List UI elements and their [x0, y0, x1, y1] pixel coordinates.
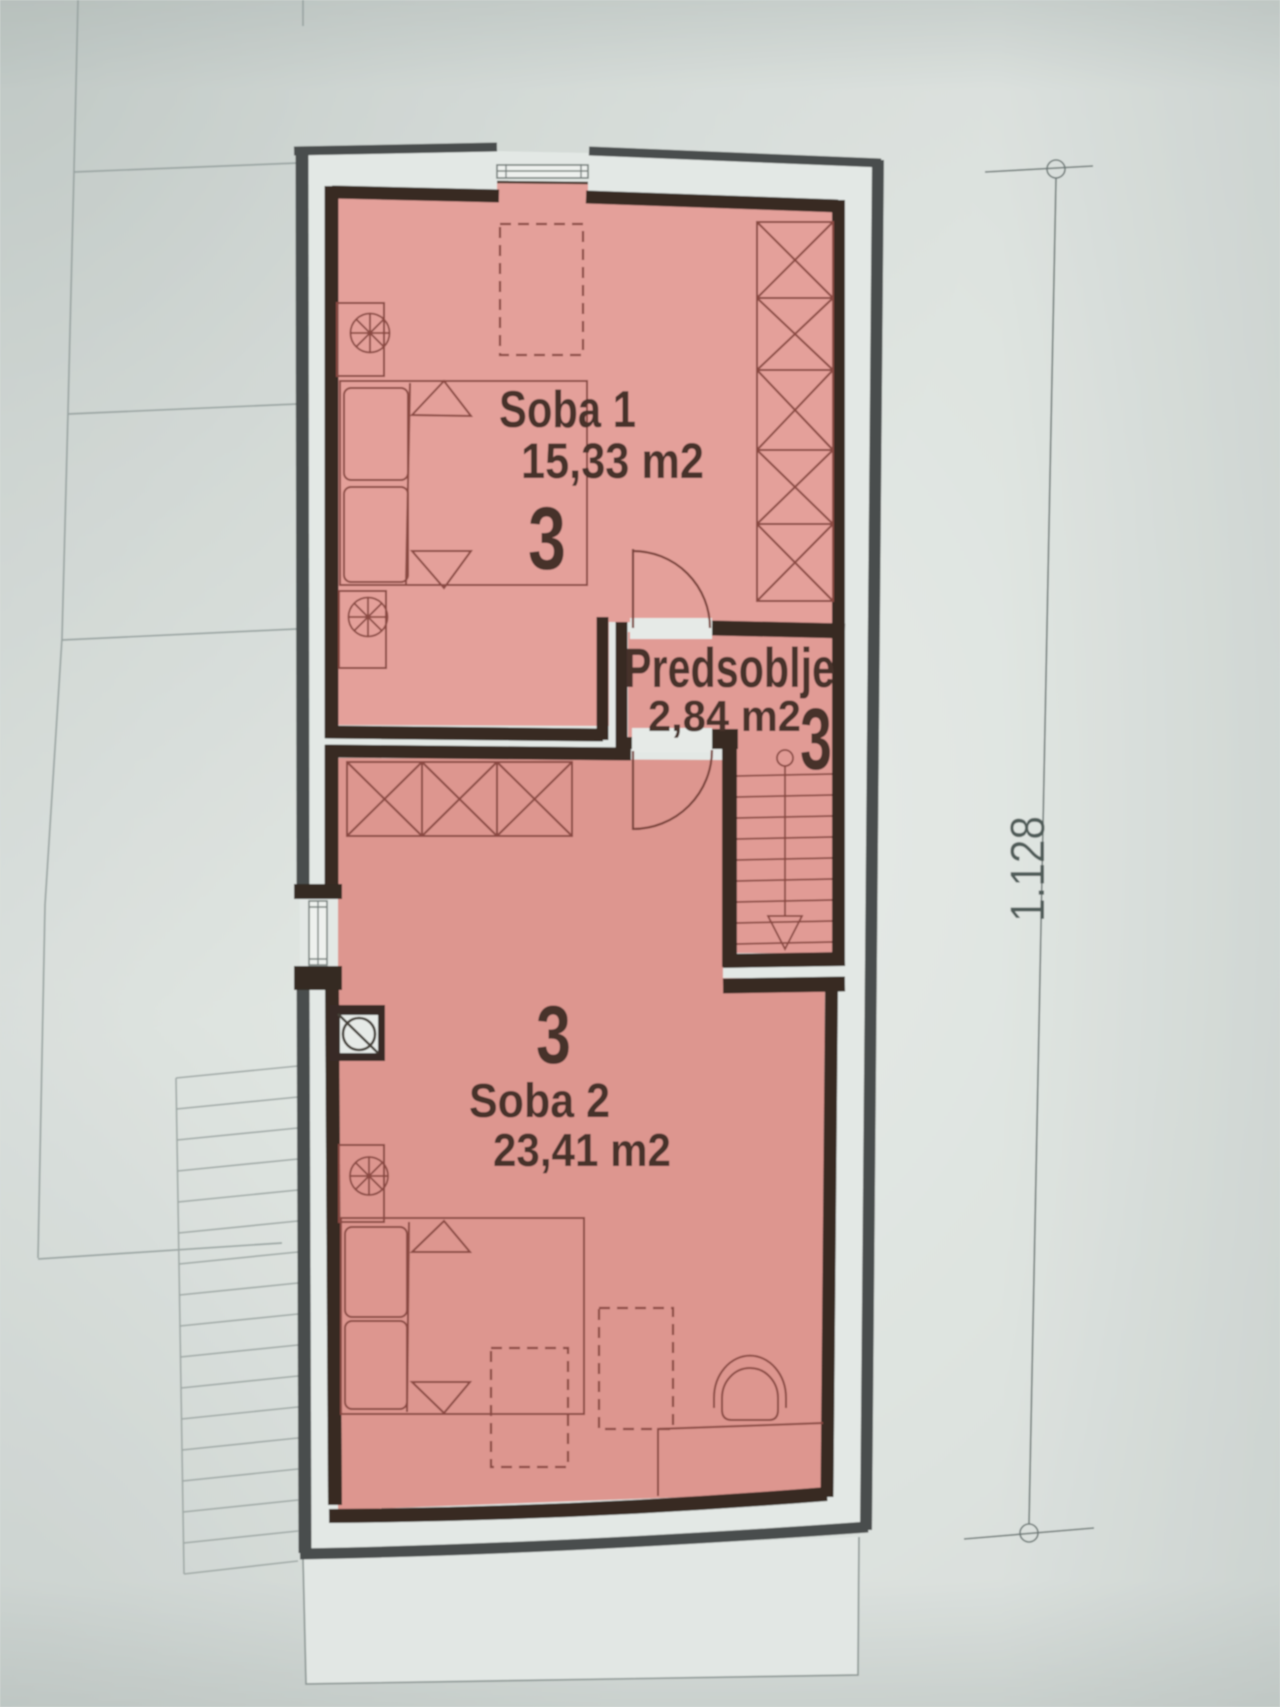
svg-text:3: 3: [800, 691, 832, 788]
svg-text:Predsoblje: Predsoblje: [624, 636, 835, 699]
svg-text:3: 3: [536, 988, 571, 1081]
svg-text:1.128: 1.128: [1002, 816, 1055, 922]
svg-text:15,33 m2: 15,33 m2: [521, 433, 704, 489]
svg-text:2,84 m2: 2,84 m2: [648, 692, 801, 741]
svg-text:Soba 1: Soba 1: [499, 381, 636, 439]
svg-text:3: 3: [528, 488, 566, 588]
svg-text:Soba 2: Soba 2: [469, 1075, 610, 1128]
svg-text:23,41 m2: 23,41 m2: [493, 1124, 671, 1176]
